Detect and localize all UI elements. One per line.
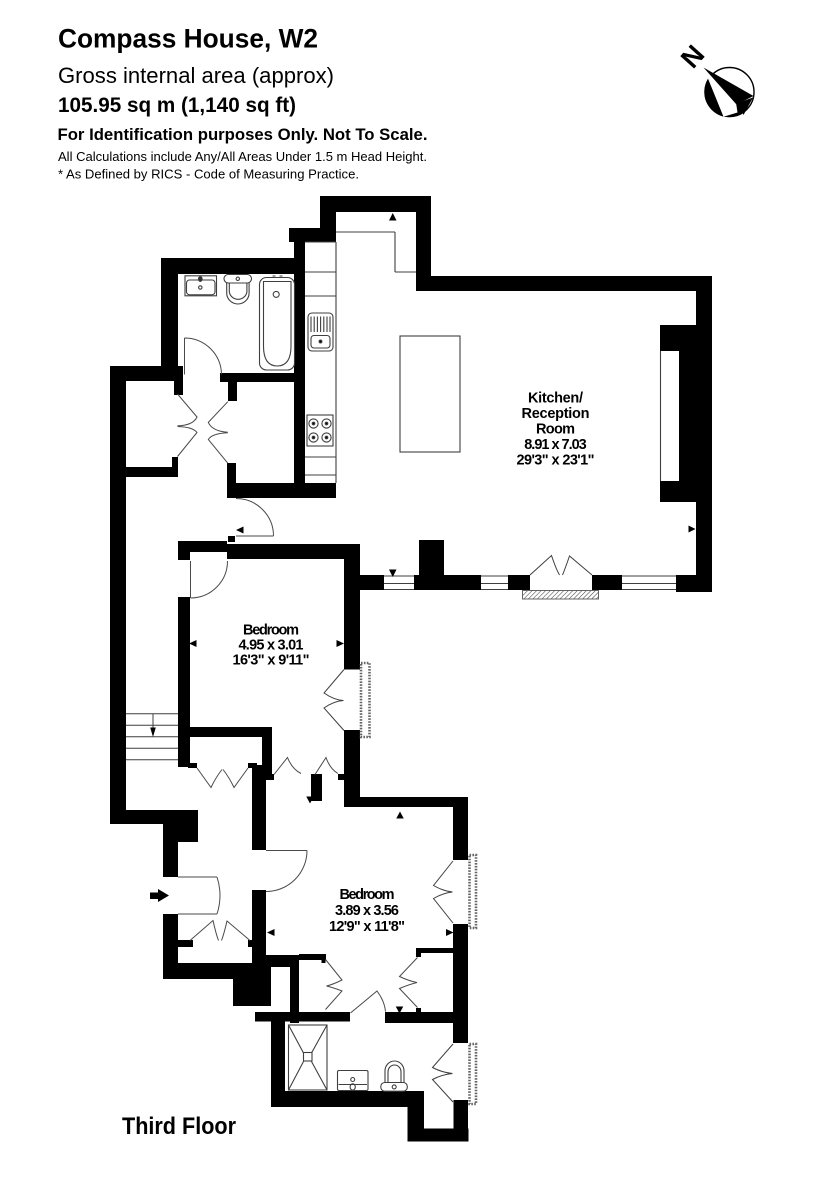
svg-text:8.91 x 7.03: 8.91 x 7.03 <box>524 437 587 453</box>
svg-text:3.89 x 3.56: 3.89 x 3.56 <box>335 903 399 919</box>
svg-text:Third Floor: Third Floor <box>122 1113 236 1140</box>
svg-text:For Identification purposes On: For Identification purposes Only. Not To… <box>58 125 428 144</box>
svg-text:Reception: Reception <box>522 406 590 422</box>
svg-text:Compass House, W2: Compass House, W2 <box>58 24 318 54</box>
svg-text:Gross internal area (approx): Gross internal area (approx) <box>58 63 334 88</box>
svg-text:105.95 sq m (1,140 sq ft): 105.95 sq m (1,140 sq ft) <box>58 93 296 117</box>
svg-text:Bedroom: Bedroom <box>340 887 395 903</box>
svg-text:Room: Room <box>536 422 575 438</box>
svg-text:* As Defined by RICS - Code of: * As Defined by RICS - Code of Measuring… <box>58 167 359 182</box>
svg-text:Kitchen/: Kitchen/ <box>528 391 583 407</box>
svg-text:29'3" x 23'1": 29'3" x 23'1" <box>517 453 595 469</box>
svg-text:12'9" x 11'8": 12'9" x 11'8" <box>329 919 405 935</box>
svg-text:All Calculations include Any/A: All Calculations include Any/All Areas U… <box>58 149 427 164</box>
svg-text:4.95 x 3.01: 4.95 x 3.01 <box>239 638 304 654</box>
svg-text:16'3" x 9'11": 16'3" x 9'11" <box>233 653 310 669</box>
svg-text:Bedroom: Bedroom <box>243 623 299 639</box>
